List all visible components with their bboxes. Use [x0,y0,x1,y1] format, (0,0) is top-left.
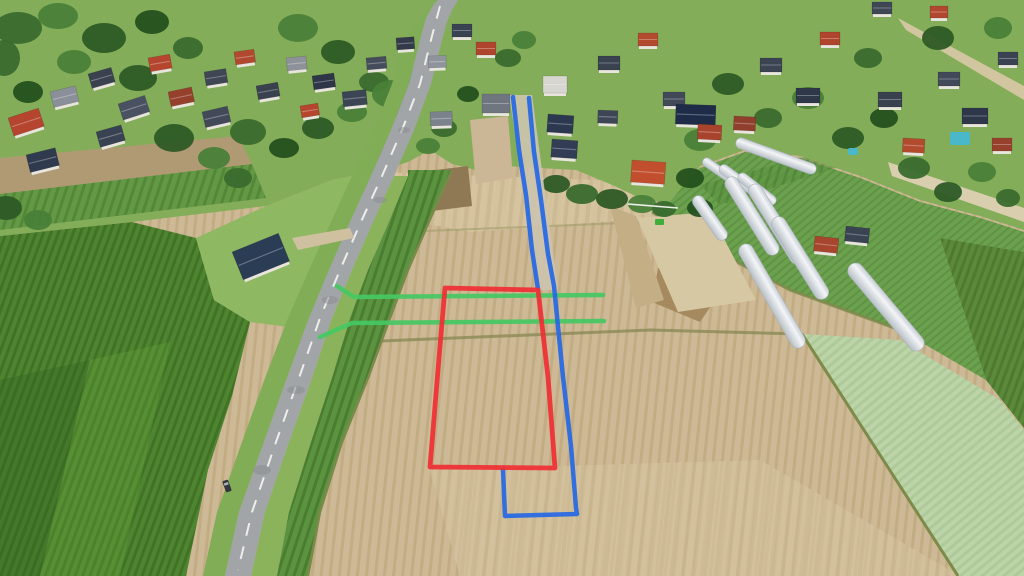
house [598,56,620,73]
house [638,33,658,49]
tree [542,175,570,193]
tree [922,26,954,50]
tree [321,40,355,64]
tree [173,37,203,59]
house [878,92,902,110]
tree [566,184,598,204]
house [820,32,840,48]
tree [38,3,78,29]
house [962,108,988,127]
dirt-yard [470,116,513,184]
tractor [655,219,664,225]
house [938,72,960,89]
tree [457,86,479,102]
tree [135,10,169,34]
house [482,94,510,116]
tree [854,48,882,68]
house [630,160,666,187]
tree [416,138,440,154]
house [476,42,496,58]
tree [198,147,230,169]
tree [512,31,536,49]
house [300,103,320,121]
house [697,124,722,143]
aerial-photo-canvas [0,0,1024,576]
tree [832,127,864,149]
house [286,56,308,74]
house [430,111,453,129]
tree [712,73,744,95]
tree [495,49,521,67]
tree [676,168,704,188]
tree [652,201,676,217]
house [872,2,892,17]
house [597,110,618,127]
tree [82,23,126,53]
house [452,24,472,40]
house [844,226,870,246]
tree [870,108,898,128]
tree [13,81,43,103]
tree [57,50,91,74]
house [428,55,447,71]
house [543,76,567,96]
house [551,139,578,162]
tree [934,182,962,202]
house [930,6,948,21]
tree [984,17,1012,39]
house [234,49,256,68]
house [366,56,387,73]
house [204,69,228,89]
tree [269,138,299,158]
house [998,52,1018,68]
tree [24,210,52,230]
aerial-photo [0,0,1024,576]
house [796,88,820,106]
house [396,37,415,53]
tree [302,117,334,139]
house [547,114,574,137]
tree [278,14,318,42]
garden-pool [848,148,858,155]
tree [154,124,194,152]
house [733,116,756,134]
tree [996,189,1020,207]
house [902,138,925,156]
house [312,73,336,93]
tree [898,157,930,179]
tree [230,119,266,145]
tree [224,168,252,188]
house [760,58,782,75]
garden-pool [950,132,970,145]
tree [754,108,782,128]
tree [596,189,628,209]
house [992,138,1012,154]
house [813,236,839,256]
house [342,89,368,109]
tree [968,162,996,182]
